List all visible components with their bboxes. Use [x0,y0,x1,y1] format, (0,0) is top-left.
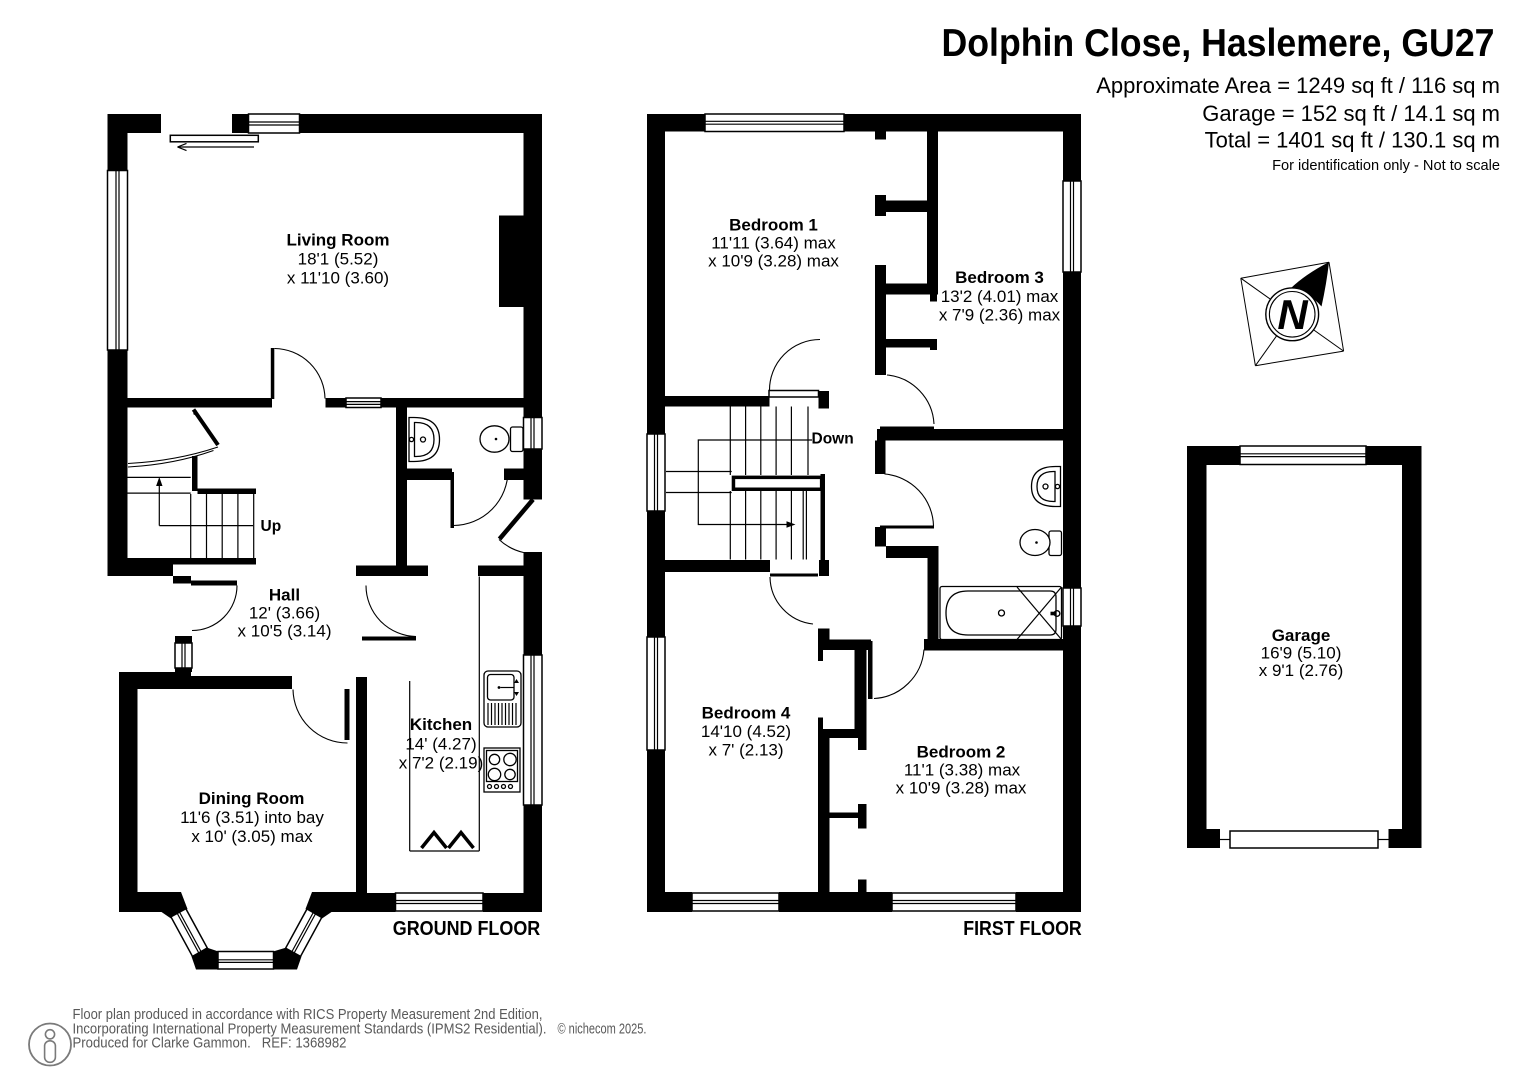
svg-text:x 10'5 (3.14): x 10'5 (3.14) [238,622,332,641]
svg-text:Hall: Hall [269,586,300,605]
svg-text:11'11 (3.64) max: 11'11 (3.64) max [711,234,836,253]
svg-text:Garage = 152 sq ft / 14.1 sq m: Garage = 152 sq ft / 14.1 sq m [1202,101,1500,126]
svg-text:Down: Down [812,431,854,448]
svg-text:16'9 (5.10): 16'9 (5.10) [1261,644,1342,663]
svg-text:11'6 (3.51) into bay: 11'6 (3.51) into bay [180,808,324,827]
svg-text:x 10' (3.05) max: x 10' (3.05) max [191,827,313,846]
svg-text:For identification only - Not: For identification only - Not to scale [1272,158,1500,174]
svg-text:FIRST FLOOR: FIRST FLOOR [963,918,1082,940]
svg-text:12' (3.66): 12' (3.66) [249,604,320,623]
svg-text:Dining Room: Dining Room [199,789,305,808]
svg-text:Kitchen: Kitchen [410,715,472,734]
svg-text:x 10'9 (3.28) max: x 10'9 (3.28) max [896,779,1027,798]
svg-text:© nichecom 2025.: © nichecom 2025. [558,1021,647,1037]
svg-text:13'2 (4.01) max: 13'2 (4.01) max [941,287,1059,306]
svg-text:N: N [1277,291,1309,338]
svg-text:Approximate Area = 1249 sq ft: Approximate Area = 1249 sq ft / 116 sq m [1096,73,1500,98]
svg-text:Living Room: Living Room [287,231,390,250]
svg-text:Bedroom 2: Bedroom 2 [917,743,1006,762]
svg-text:x 11'10 (3.60): x 11'10 (3.60) [287,269,389,288]
svg-text:Bedroom 1: Bedroom 1 [729,216,818,235]
svg-text:Garage: Garage [1272,626,1331,645]
svg-text:18'1 (5.52): 18'1 (5.52) [298,250,379,269]
svg-text:GROUND FLOOR: GROUND FLOOR [393,918,541,940]
svg-text:Dolphin Close, Haslemere, GU27: Dolphin Close, Haslemere, GU27 [942,22,1495,65]
svg-text:x 7' (2.13): x 7' (2.13) [708,741,783,760]
svg-text:14'10 (4.52): 14'10 (4.52) [701,722,791,741]
svg-text:Up: Up [261,518,282,535]
svg-text:x 7'9 (2.36) max: x 7'9 (2.36) max [939,306,1061,325]
svg-text:x 10'9 (3.28) max: x 10'9 (3.28) max [708,252,839,271]
svg-text:x 7'2 (2.19): x 7'2 (2.19) [399,754,484,773]
svg-text:x 9'1 (2.76): x 9'1 (2.76) [1259,661,1344,680]
svg-text:Total = 1401 sq ft / 130.1 sq: Total = 1401 sq ft / 130.1 sq m [1205,128,1500,153]
svg-text:14' (4.27): 14' (4.27) [405,735,476,754]
svg-text:Produced for Clarke Gammon.: Produced for Clarke Gammon. REF: 1368982 [73,1036,347,1052]
svg-text:Bedroom 4: Bedroom 4 [702,704,791,723]
svg-text:Bedroom 3: Bedroom 3 [955,268,1044,287]
svg-text:11'1 (3.38) max: 11'1 (3.38) max [904,761,1021,780]
